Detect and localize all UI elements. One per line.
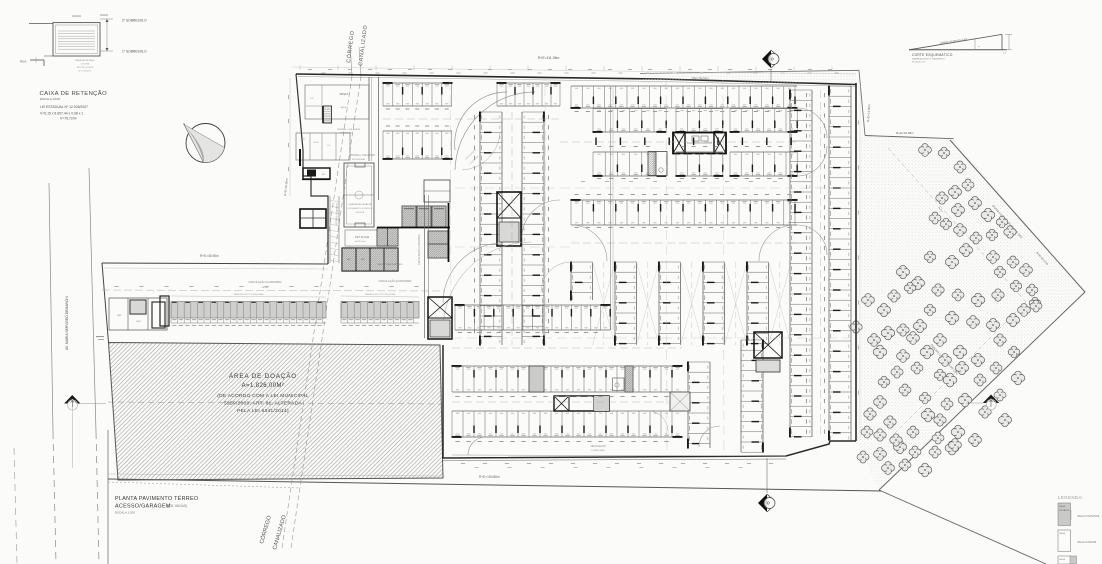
svg-text:CHUR: CHUR [313, 142, 319, 144]
svg-text:RUA: RUA [20, 60, 26, 64]
svg-text:ACESSO/GARAGEM: ACESSO/GARAGEM [115, 504, 171, 510]
svg-text:DEP: DEP [117, 315, 122, 317]
svg-text:FESTA: FESTA [340, 92, 349, 96]
svg-text:WC: WC [361, 259, 365, 261]
svg-text:2º SOBRESOLO: 2º SOBRESOLO [122, 19, 147, 23]
svg-text:CIRCULAÇÃO: CIRCULAÇÃO [590, 445, 606, 448]
svg-text:FECHAMENTO SUPERIOR: FECHAMENTO SUPERIOR [348, 207, 374, 210]
svg-text:DEPÓSITO/BICICLETÁRIO: DEPÓSITO/BICICLETÁRIO [378, 263, 403, 266]
svg-text:V=79,72m²: V=79,72m² [60, 117, 78, 121]
svg-text:A=22,00m²: A=22,00m² [355, 240, 366, 243]
svg-text:VEST: VEST [301, 139, 307, 141]
svg-text:ÁREA DE DOAÇÃO: ÁREA DE DOAÇÃO [229, 373, 297, 380]
svg-text:WC: WC [347, 259, 351, 261]
svg-text:R+E=111.06m: R+E=111.06m [538, 56, 560, 60]
svg-text:EM TELA: EM TELA [356, 211, 365, 214]
svg-text:PISCINA + SOLARIUM: PISCINA + SOLARIUM [350, 154, 375, 157]
svg-text:ESP: ESP [310, 98, 315, 100]
svg-text:VAGA DE MOTO E PEQUENA: VAGA DE MOTO E PEQUENA [365, 293, 395, 296]
svg-text:CIRCULAÇÃO E MANOBRA: CIRCULAÇÃO E MANOBRA [418, 234, 421, 265]
svg-text:VAGA VISITANTE: VAGA VISITANTE [1077, 514, 1100, 518]
svg-text:E MANOBRA: E MANOBRA [591, 449, 605, 452]
svg-text:CAIXA DE RETENÇ.: CAIXA DE RETENÇ. [75, 59, 96, 62]
svg-text:1º SOBRESOLO: 1º SOBRESOLO [122, 50, 147, 54]
svg-text:CORTE ESQUEMÁTICO: CORTE ESQUEMÁTICO [912, 53, 953, 57]
svg-text:IMPERMEAB.: IMPERMEAB. [352, 158, 366, 161]
svg-text:AV. MARIA SERVIDEO DEMARCHI: AV. MARIA SERVIDEO DEMARCHI [65, 296, 69, 350]
svg-text:ESCALA 1/100: ESCALA 1/100 [912, 61, 926, 64]
svg-text:PELA LEI 6341/2014): PELA LEI 6341/2014) [237, 408, 289, 414]
svg-text:WC: WC [322, 174, 326, 176]
svg-text:LEI ESTADUAL Nº 12.526/2007: LEI ESTADUAL Nº 12.526/2007 [40, 105, 88, 109]
svg-text:LIXO: LIXO [136, 321, 141, 323]
svg-text:ÁREA TÉCNICA: ÁREA TÉCNICA [691, 77, 709, 80]
svg-text:R+E=45.90m: R+E=45.90m [200, 254, 219, 258]
svg-text:PEDRAS + SOLARIUM: PEDRAS + SOLARIUM [337, 128, 360, 131]
svg-text:QUADRA RECREATIVA: QUADRA RECREATIVA [348, 203, 372, 206]
svg-text:SALÃO: SALÃO [340, 106, 348, 109]
svg-text:PET PLACE: PET PLACE [355, 235, 369, 239]
svg-text:R+E=18.98m: R+E=18.98m [896, 131, 914, 135]
svg-text:LEGENDA:: LEGENDA: [1058, 495, 1083, 500]
svg-text:VISITANTE: VISITANTE [1059, 509, 1070, 512]
svg-text:(DE ACORDO COM A LEI MUNICIPAL: (DE ACORDO COM A LEI MUNICIPAL [217, 393, 309, 399]
svg-text:VAGA DE MOTO E PEQUENA: VAGA DE MOTO E PEQUENA [234, 293, 264, 296]
svg-text:VAGA: VAGA [1059, 505, 1065, 508]
svg-text:VAGA: VAGA [1059, 558, 1065, 561]
svg-text:PLANTA PAVIMENTO TÉRREO: PLANTA PAVIMENTO TÉRREO [115, 495, 198, 502]
svg-text:V=6,15 x 8.657,44 x 0,08: V=6,15 x 8.657,44 x 0,08 x 1 [40, 112, 83, 116]
svg-text:CAIXA DE RETENÇÃO: CAIXA DE RETENÇÃO [40, 90, 108, 97]
svg-text:ESCALA 1/100: ESCALA 1/100 [40, 97, 60, 101]
svg-text:N: N [183, 122, 185, 126]
svg-text:A=1.826,00M²: A=1.826,00M² [242, 383, 285, 389]
svg-text:ART. 36 LICENÇA: ART. 36 LICENÇA [77, 66, 94, 69]
svg-text:VAGA COMUM: VAGA COMUM [1077, 540, 1097, 544]
svg-text:R+E=190.86m: R+E=190.86m [479, 475, 500, 479]
svg-text:VAGA: VAGA [1059, 532, 1065, 535]
svg-text:ESCALA 1:200: ESCALA 1:200 [115, 511, 135, 515]
svg-text:VOLUME: VOLUME [81, 64, 90, 66]
svg-text:RAMPA ACESSO 2º PAVIMENTO: RAMPA ACESSO 2º PAVIMENTO [912, 58, 945, 61]
svg-text:Nº 6.726/2007: Nº 6.726/2007 [79, 70, 93, 73]
svg-text:5959/2009, ART. 81, ALTERADA: 5959/2009, ART. 81, ALTERADA [224, 401, 302, 407]
svg-text:(231 VAGAS): (231 VAGAS) [167, 504, 187, 508]
